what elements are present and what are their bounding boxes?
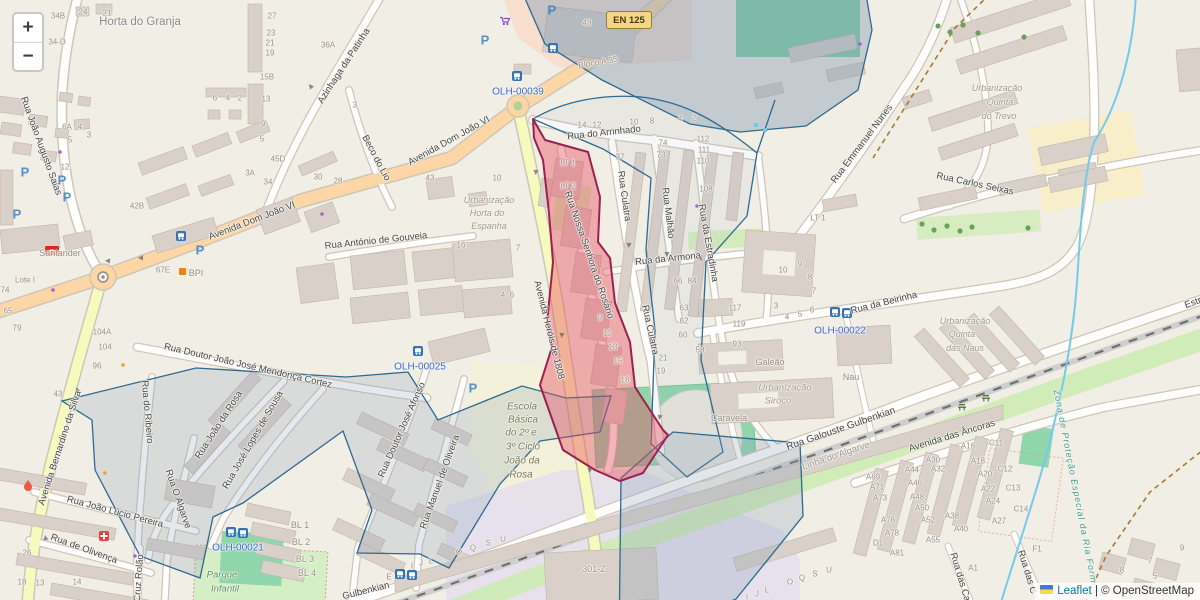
zoom-out-button[interactable]: − xyxy=(14,42,42,70)
openstreetmap-link[interactable]: © OpenStreetMap xyxy=(1101,585,1194,597)
bus-stop-icon xyxy=(226,527,236,537)
bus-stop-icon xyxy=(548,43,558,53)
bus-stop-icon xyxy=(395,569,405,579)
water-feature-icon xyxy=(763,128,767,132)
bus-stop-icon xyxy=(176,231,186,241)
picnic-table-icon xyxy=(982,395,990,402)
bus-stop-icon xyxy=(842,308,852,318)
water-feature-icon xyxy=(754,123,758,127)
supermarket-icon xyxy=(500,18,510,26)
map-canvas[interactable]: Horta do Granja34B34-DAzinhaga da Patinh… xyxy=(0,0,1200,600)
santander-bank-icon xyxy=(45,246,59,255)
bus-stop-icon xyxy=(413,346,423,356)
picnic-table-icon xyxy=(958,404,966,411)
bus-stop-icon xyxy=(407,570,417,580)
roundabout-icon xyxy=(98,272,108,282)
bus-stop-icon xyxy=(238,528,248,538)
leaflet-link[interactable]: Leaflet xyxy=(1057,585,1092,597)
bus-stop-icon xyxy=(512,71,522,81)
attribution-bar: Leaflet | © OpenStreetMap xyxy=(1035,583,1200,600)
map-tiles xyxy=(0,0,1200,600)
attribution-separator: | xyxy=(1095,585,1098,597)
first-aid-icon xyxy=(99,531,109,541)
zoom-control: + − xyxy=(12,12,44,72)
bus-stop-icon xyxy=(830,307,840,317)
en125-route-shield: EN 125 xyxy=(606,11,652,29)
zoom-in-button[interactable]: + xyxy=(14,14,42,42)
stream-line xyxy=(998,0,1136,600)
ukraine-flag-icon xyxy=(1040,585,1053,594)
bpi-bank-icon xyxy=(179,268,186,275)
